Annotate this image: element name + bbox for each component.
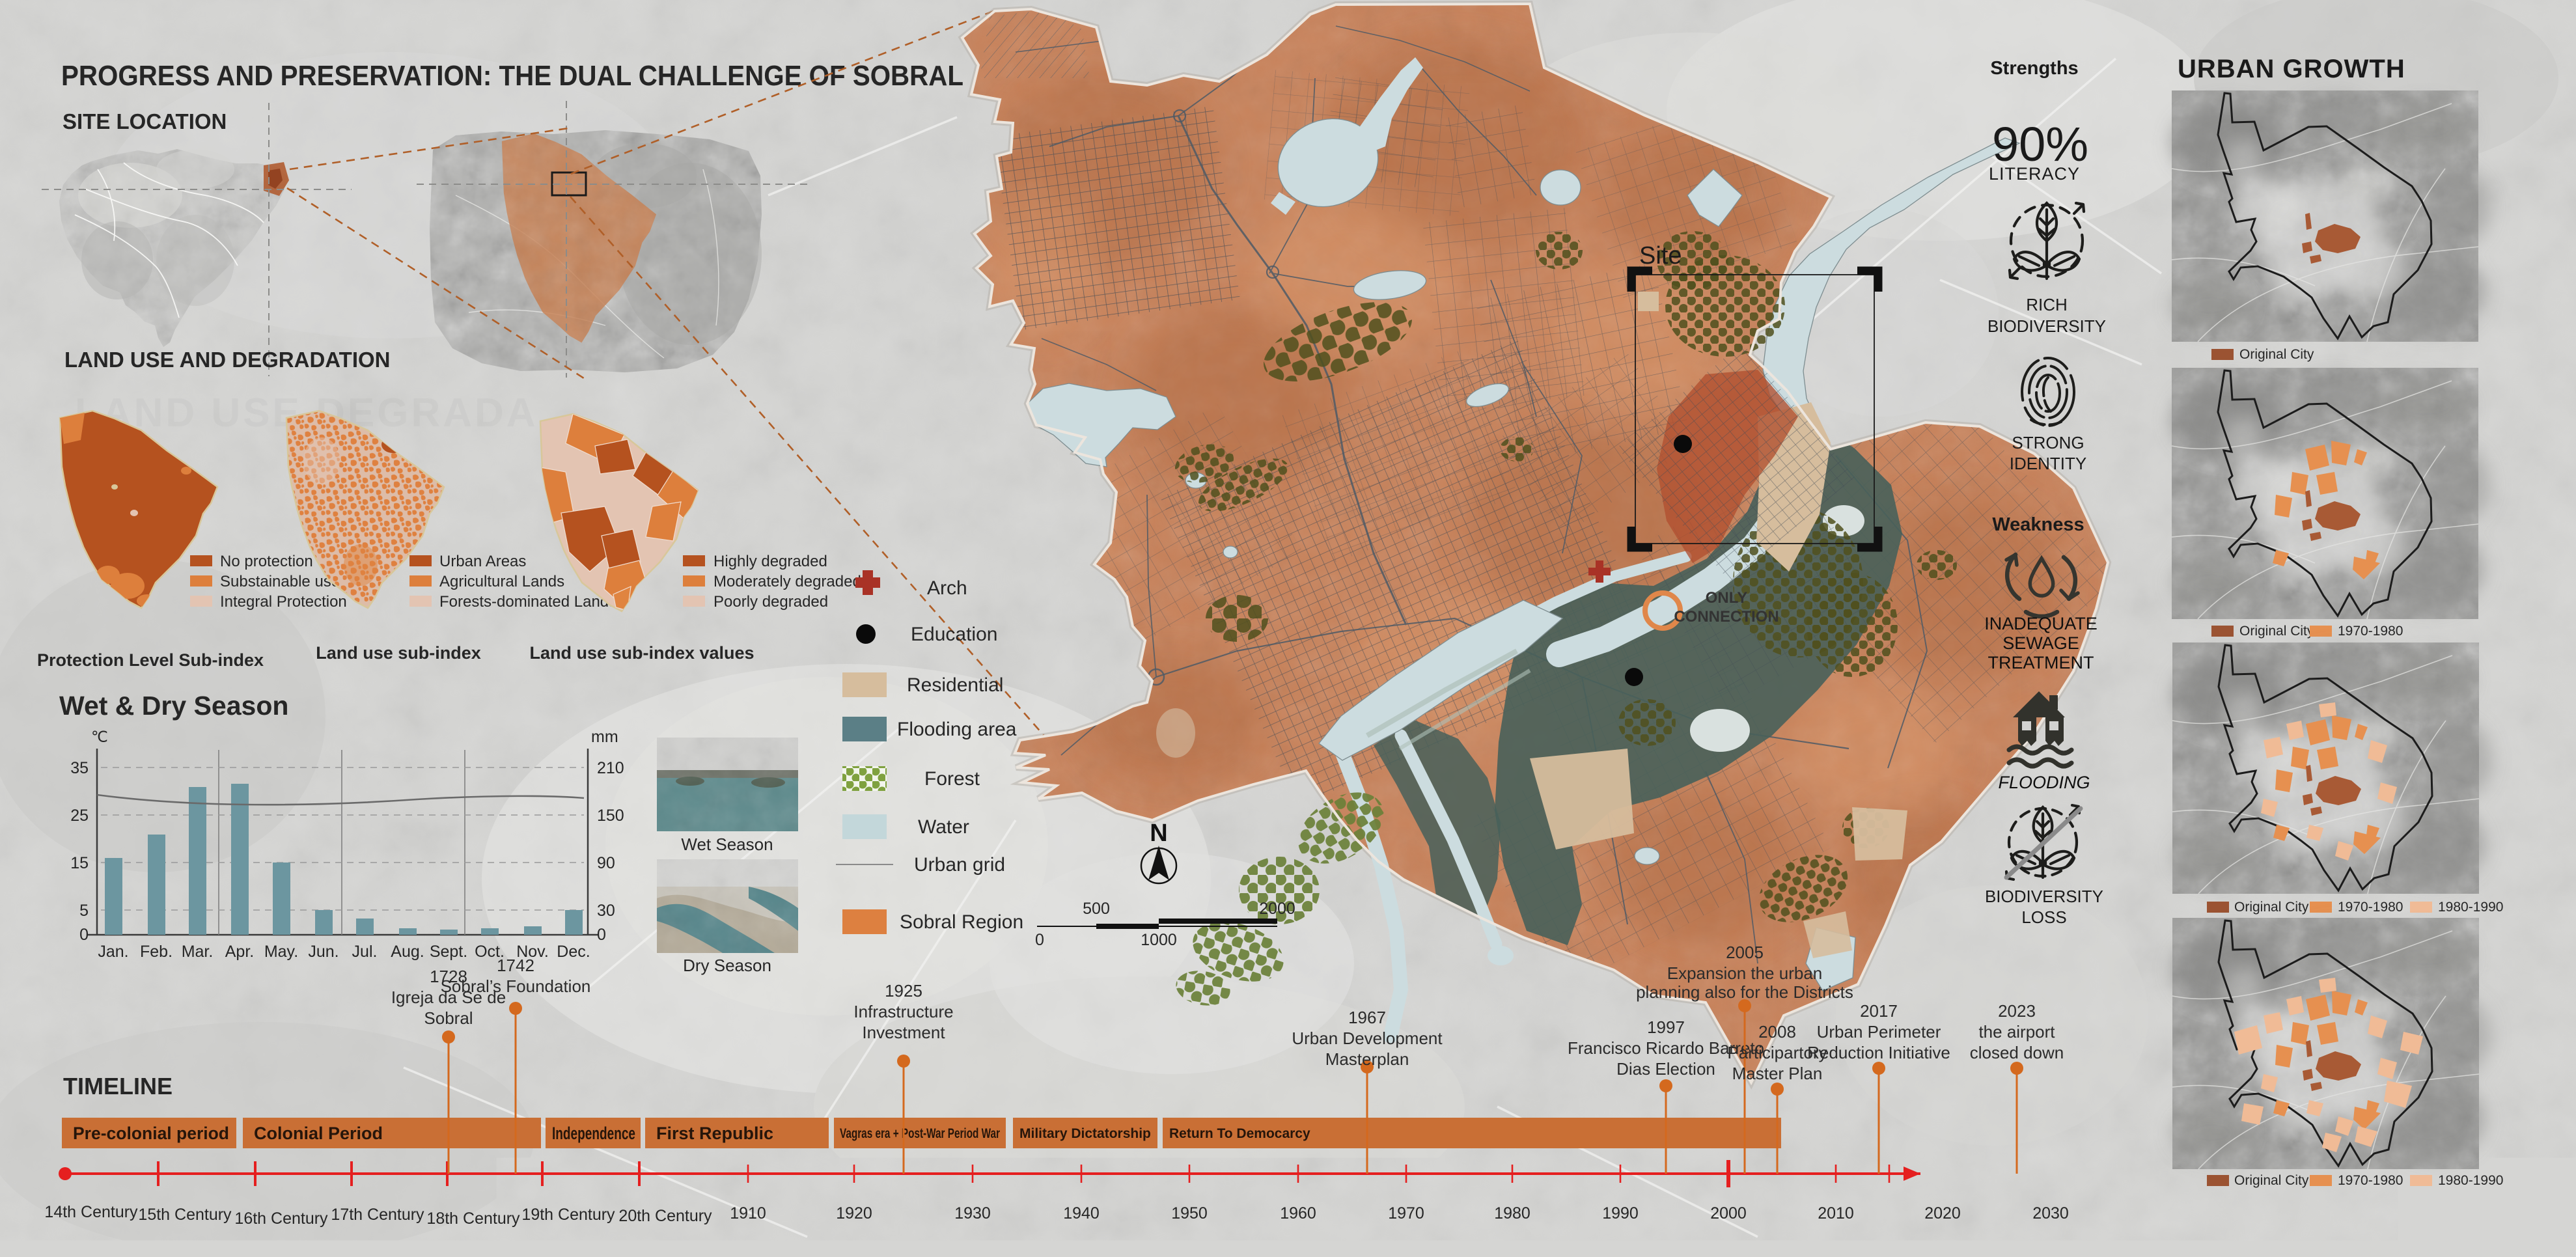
svg-text:Colonial Period: Colonial Period [254, 1124, 383, 1143]
svg-text:INADEQUATE: INADEQUATE [1984, 614, 2098, 633]
svg-text:BIODIVERSITY: BIODIVERSITY [1985, 887, 2103, 906]
svg-text:2000: 2000 [1710, 1204, 1747, 1222]
svg-text:2020: 2020 [1924, 1204, 1961, 1222]
svg-text:Master Plan: Master Plan [1732, 1064, 1823, 1083]
svg-text:Investment: Investment [862, 1023, 945, 1042]
svg-text:Strengths: Strengths [1990, 58, 2078, 79]
svg-text:Sobral’s Foundation: Sobral’s Foundation [441, 976, 591, 996]
svg-text:RICH: RICH [2026, 295, 2068, 314]
svg-text:Water: Water [918, 816, 969, 838]
svg-text:TIMELINE: TIMELINE [63, 1073, 173, 1099]
svg-text:May.: May. [264, 943, 298, 961]
svg-text:1960: 1960 [1280, 1204, 1316, 1222]
svg-text:0: 0 [79, 926, 89, 944]
svg-text:Moderately degraded: Moderately degraded [713, 573, 861, 590]
svg-text:18th Century: 18th Century [426, 1209, 520, 1228]
svg-text:℃: ℃ [91, 728, 108, 745]
svg-text:Mar.: Mar. [182, 943, 214, 961]
svg-text:Forests-dominated Lands: Forests-dominated Lands [439, 593, 616, 611]
svg-text:URBAN GROWTH: URBAN GROWTH [2178, 55, 2405, 83]
svg-text:Urban Development: Urban Development [1292, 1029, 1443, 1048]
svg-text:Dec.: Dec. [557, 943, 590, 961]
svg-text:Urban grid: Urban grid [914, 854, 1005, 876]
svg-text:Land use sub-index: Land use sub-index [316, 643, 481, 663]
svg-text:Wet Season: Wet Season [681, 835, 773, 854]
svg-text:Protection Level Sub-index: Protection Level Sub-index [37, 650, 264, 670]
svg-text:1980-1990: 1980-1990 [2438, 1173, 2503, 1188]
svg-text:1925: 1925 [885, 981, 922, 1001]
svg-text:TREATMENT: TREATMENT [1988, 653, 2094, 672]
svg-text:90%: 90% [1992, 117, 2088, 171]
svg-text:14th Century: 14th Century [44, 1203, 138, 1221]
svg-text:Original City: Original City [2234, 900, 2309, 915]
svg-text:PROGRESS AND PRESERVATION: THE: PROGRESS AND PRESERVATION: THE DUAL CHAL… [61, 60, 963, 92]
svg-text:1990: 1990 [1602, 1204, 1639, 1222]
svg-text:2030: 2030 [2032, 1204, 2069, 1222]
svg-text:Jan.: Jan. [98, 943, 128, 961]
svg-text:Feb.: Feb. [140, 943, 173, 961]
svg-text:Forest: Forest [924, 768, 980, 790]
svg-text:Expansion the urban: Expansion the urban [1667, 963, 1823, 983]
svg-text:35: 35 [70, 759, 89, 777]
svg-text:1940: 1940 [1063, 1204, 1100, 1222]
svg-text:16th Century: 16th Century [234, 1209, 328, 1228]
svg-text:N: N [1150, 820, 1167, 847]
svg-text:30: 30 [597, 902, 615, 920]
svg-text:Military Dictatorship: Military Dictatorship [1019, 1126, 1151, 1141]
svg-text:150: 150 [597, 807, 624, 825]
svg-text:LOSS: LOSS [2021, 907, 2066, 927]
svg-text:2010: 2010 [1818, 1204, 1854, 1222]
svg-text:ONLY: ONLY [1706, 589, 1747, 607]
svg-text:planning also for the District: planning also for the Districts [1636, 982, 1853, 1002]
svg-text:1970: 1970 [1388, 1204, 1424, 1222]
svg-text:Original City: Original City [2239, 347, 2314, 362]
svg-text:1920: 1920 [836, 1204, 872, 1222]
svg-text:Aug.: Aug. [391, 943, 424, 961]
svg-text:Sept.: Sept. [430, 943, 467, 961]
svg-text:Jul.: Jul. [352, 943, 378, 961]
svg-text:Jun.: Jun. [308, 943, 339, 961]
svg-text:0: 0 [1035, 931, 1044, 949]
svg-text:Pre-colonial period: Pre-colonial period [73, 1124, 229, 1143]
svg-text:0: 0 [597, 926, 606, 944]
svg-text:Arch: Arch [927, 577, 967, 599]
svg-text:25: 25 [70, 807, 89, 825]
svg-text:1930: 1930 [954, 1204, 991, 1222]
svg-text:Poorly degraded: Poorly degraded [713, 593, 828, 611]
svg-text:15th Century: 15th Century [138, 1206, 232, 1224]
svg-text:Apr.: Apr. [225, 943, 254, 961]
svg-text:LAND USE AND DEGRADATION: LAND USE AND DEGRADATION [64, 348, 391, 372]
svg-text:2005: 2005 [1726, 943, 1764, 962]
svg-text:Return To Democarcy: Return To Democarcy [1169, 1126, 1310, 1141]
svg-text:1970-1980: 1970-1980 [2338, 624, 2403, 639]
svg-text:2023: 2023 [1998, 1001, 2036, 1021]
svg-text:2017: 2017 [1860, 1001, 1898, 1021]
svg-text:Flooding area: Flooding area [897, 719, 1017, 740]
svg-text:1742: 1742 [497, 956, 534, 975]
svg-text:17th Century: 17th Century [331, 1206, 424, 1224]
svg-text:Sobral: Sobral [424, 1008, 473, 1028]
svg-text:Residential: Residential [907, 674, 1003, 696]
svg-text:1967: 1967 [1348, 1008, 1386, 1027]
svg-text:20th Century: 20th Century [618, 1207, 712, 1225]
svg-text:Dry Season: Dry Season [683, 956, 771, 975]
svg-text:500: 500 [1083, 900, 1110, 918]
svg-text:Original City: Original City [2239, 624, 2314, 639]
svg-text:Urban Areas: Urban Areas [439, 553, 526, 570]
svg-text:Education: Education [911, 624, 997, 645]
svg-text:1970-1980: 1970-1980 [2338, 1173, 2403, 1188]
svg-text:15: 15 [70, 854, 89, 872]
svg-text:SITE LOCATION: SITE LOCATION [62, 109, 227, 133]
svg-text:Urban Perimeter: Urban Perimeter [1817, 1022, 1941, 1042]
svg-text:Dias Election: Dias Election [1616, 1059, 1715, 1079]
svg-text:STRONG: STRONG [2012, 433, 2084, 452]
svg-text:Highly degraded: Highly degraded [713, 553, 827, 570]
svg-text:Sobral Region: Sobral Region [900, 911, 1023, 933]
svg-text:Wet & Dry Season: Wet & Dry Season [59, 691, 288, 721]
svg-text:Original City: Original City [2234, 1173, 2309, 1188]
svg-text:210: 210 [597, 759, 624, 777]
svg-text:Integral Protection: Integral Protection [220, 593, 347, 611]
svg-text:1970-1980: 1970-1980 [2338, 900, 2403, 915]
svg-text:the airport: the airport [1978, 1022, 2055, 1042]
svg-text:CONNECTION: CONNECTION [1674, 608, 1779, 626]
svg-text:LITERACY: LITERACY [1989, 164, 2080, 184]
svg-text:1910: 1910 [730, 1204, 766, 1222]
svg-text:BIODIVERSITY: BIODIVERSITY [1987, 316, 2106, 336]
svg-text:closed down: closed down [1970, 1043, 2064, 1062]
svg-text:19th Century: 19th Century [521, 1206, 615, 1224]
svg-text:Agricultural Lands: Agricultural Lands [439, 573, 564, 590]
svg-text:Weakness: Weakness [1992, 514, 2084, 535]
svg-text:Reduction Initiative: Reduction Initiative [1807, 1043, 1950, 1062]
svg-text:Independence: Independence [552, 1124, 635, 1143]
svg-text:Infrastructure: Infrastructure [853, 1002, 953, 1021]
svg-text:Substainable use: Substainable use [220, 573, 340, 590]
svg-text:1980: 1980 [1494, 1204, 1530, 1222]
svg-text:Vagras era + Post-War Period W: Vagras era + Post-War Period War [840, 1126, 1000, 1141]
svg-text:First Republic: First Republic [656, 1124, 773, 1143]
svg-text:Masterplan: Masterplan [1325, 1049, 1409, 1069]
svg-text:FLOODING: FLOODING [1998, 773, 2090, 792]
svg-text:2000: 2000 [1259, 900, 1295, 918]
svg-text:1000: 1000 [1141, 931, 1177, 949]
svg-text:SEWAGE: SEWAGE [2002, 633, 2079, 653]
svg-text:Site: Site [1639, 242, 1682, 269]
svg-text:2008: 2008 [1758, 1022, 1796, 1042]
svg-text:5: 5 [79, 902, 89, 920]
svg-text:IDENTITY: IDENTITY [2010, 454, 2086, 473]
svg-text:mm: mm [591, 728, 618, 746]
svg-text:1950: 1950 [1171, 1204, 1208, 1222]
svg-text:90: 90 [597, 854, 615, 872]
svg-text:1980-1990: 1980-1990 [2438, 900, 2503, 915]
svg-text:1997: 1997 [1647, 1017, 1685, 1037]
svg-text:Land use sub-index values: Land use sub-index values [529, 643, 754, 663]
svg-text:No protection: No protection [220, 553, 313, 570]
